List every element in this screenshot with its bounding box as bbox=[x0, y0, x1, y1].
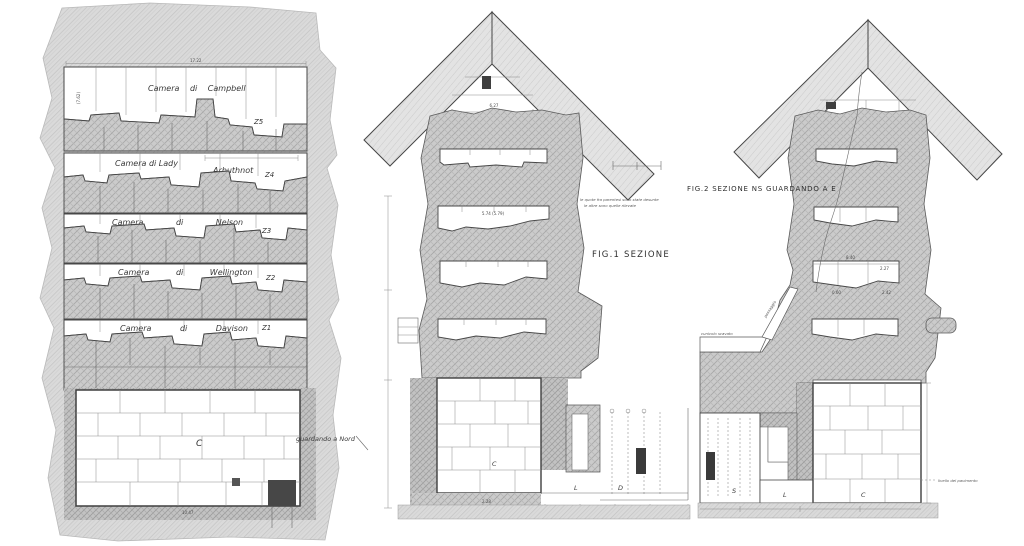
note-line-2: le altre sono quelle rilevate bbox=[584, 203, 637, 208]
dim-apex: 6.27 bbox=[490, 103, 499, 108]
chamber-code-z3: Z3 bbox=[261, 227, 271, 235]
serdab-letter: S bbox=[732, 487, 736, 495]
projecting-stone bbox=[926, 318, 956, 333]
dim-d: 2.42 bbox=[882, 290, 891, 295]
middle-section-view: 6.27 5.74 (5.79) C L D bbox=[364, 12, 690, 519]
fig2-caption: FIG.2 SEZIONE NS GUARDANDO A E bbox=[687, 185, 837, 193]
portcullis-slab-2 bbox=[706, 452, 715, 480]
kings-chamber-void bbox=[76, 390, 300, 506]
fig1-caption: FIG.1 SEZIONE bbox=[592, 250, 670, 260]
kc-void bbox=[437, 378, 541, 493]
dark-recess bbox=[268, 480, 296, 506]
base-band-2 bbox=[698, 503, 938, 518]
chamber-code-z1: Z1 bbox=[261, 324, 271, 332]
view-note: guardando a Nord bbox=[296, 435, 356, 443]
dim-c: 0.60 bbox=[832, 290, 841, 295]
kc-letter-mid: C bbox=[492, 460, 497, 468]
passage-letter-l2: L bbox=[783, 491, 787, 499]
kc-right-wall bbox=[541, 378, 568, 470]
dim-b: 2.27 bbox=[880, 266, 889, 271]
chamber-code-z4: Z4 bbox=[264, 171, 274, 179]
passage-letter-l: L bbox=[574, 484, 578, 492]
wall-notch bbox=[398, 318, 418, 343]
portcullis-slab bbox=[636, 448, 646, 474]
antechamber-letter-d: D bbox=[618, 484, 623, 492]
tunnel-note: cunicolo scavato bbox=[701, 331, 733, 336]
scanned-drawing-page: 17.22 (7.62) Camera di Campbell Z5 Camer… bbox=[0, 0, 1024, 546]
dim-slot: 5.74 (5.79) bbox=[482, 211, 505, 216]
note-line-1: le quote fra parentesi sono state desunt… bbox=[580, 197, 659, 202]
dim-bottom-left: 10.47 bbox=[182, 510, 194, 515]
portcullis-channel bbox=[572, 414, 588, 470]
small-dark-block bbox=[232, 478, 240, 486]
level-note: livello del pavimento bbox=[938, 478, 978, 483]
dim-a: 8.40 bbox=[846, 255, 855, 260]
left-section-view: 17.22 (7.62) Camera di Campbell Z5 Camer… bbox=[40, 3, 368, 541]
chamber-code-z2: Z2 bbox=[265, 274, 276, 282]
kc2-left-wall bbox=[797, 383, 813, 480]
gable-dark-block-2 bbox=[826, 102, 836, 109]
chamber-code-z5: Z5 bbox=[253, 118, 264, 126]
kc2-void bbox=[813, 383, 921, 503]
height-dim-line bbox=[384, 196, 392, 508]
kings-chamber-letter: C bbox=[196, 439, 203, 449]
gable-dark-block bbox=[482, 76, 491, 89]
kc2-letter: C bbox=[861, 491, 866, 499]
base-band bbox=[398, 505, 690, 519]
view-note-leader bbox=[356, 436, 368, 450]
passage-notch bbox=[768, 427, 788, 462]
dim-top-left: 17.22 bbox=[190, 58, 202, 63]
kc-left-wall bbox=[410, 378, 437, 505]
pyramid-sections-drawing: 17.22 (7.62) Camera di Campbell Z5 Camer… bbox=[0, 0, 1024, 546]
chamber-label-wellington: Camera di Wellington bbox=[118, 268, 253, 277]
chamber-label-arbuthnot-1: Camera di Lady bbox=[115, 159, 178, 168]
kc2-height-dim bbox=[923, 383, 931, 503]
dim-floor-mid: 2.28 bbox=[482, 499, 491, 504]
dim-side-left: (7.62) bbox=[76, 92, 81, 104]
right-section-view: 8.40 2.27 0.60 2.42 cunicolo scavato pas… bbox=[687, 20, 1002, 518]
chamber-label-campbell: Camera di Campbell bbox=[148, 84, 246, 93]
kc-subfloor bbox=[412, 493, 541, 505]
